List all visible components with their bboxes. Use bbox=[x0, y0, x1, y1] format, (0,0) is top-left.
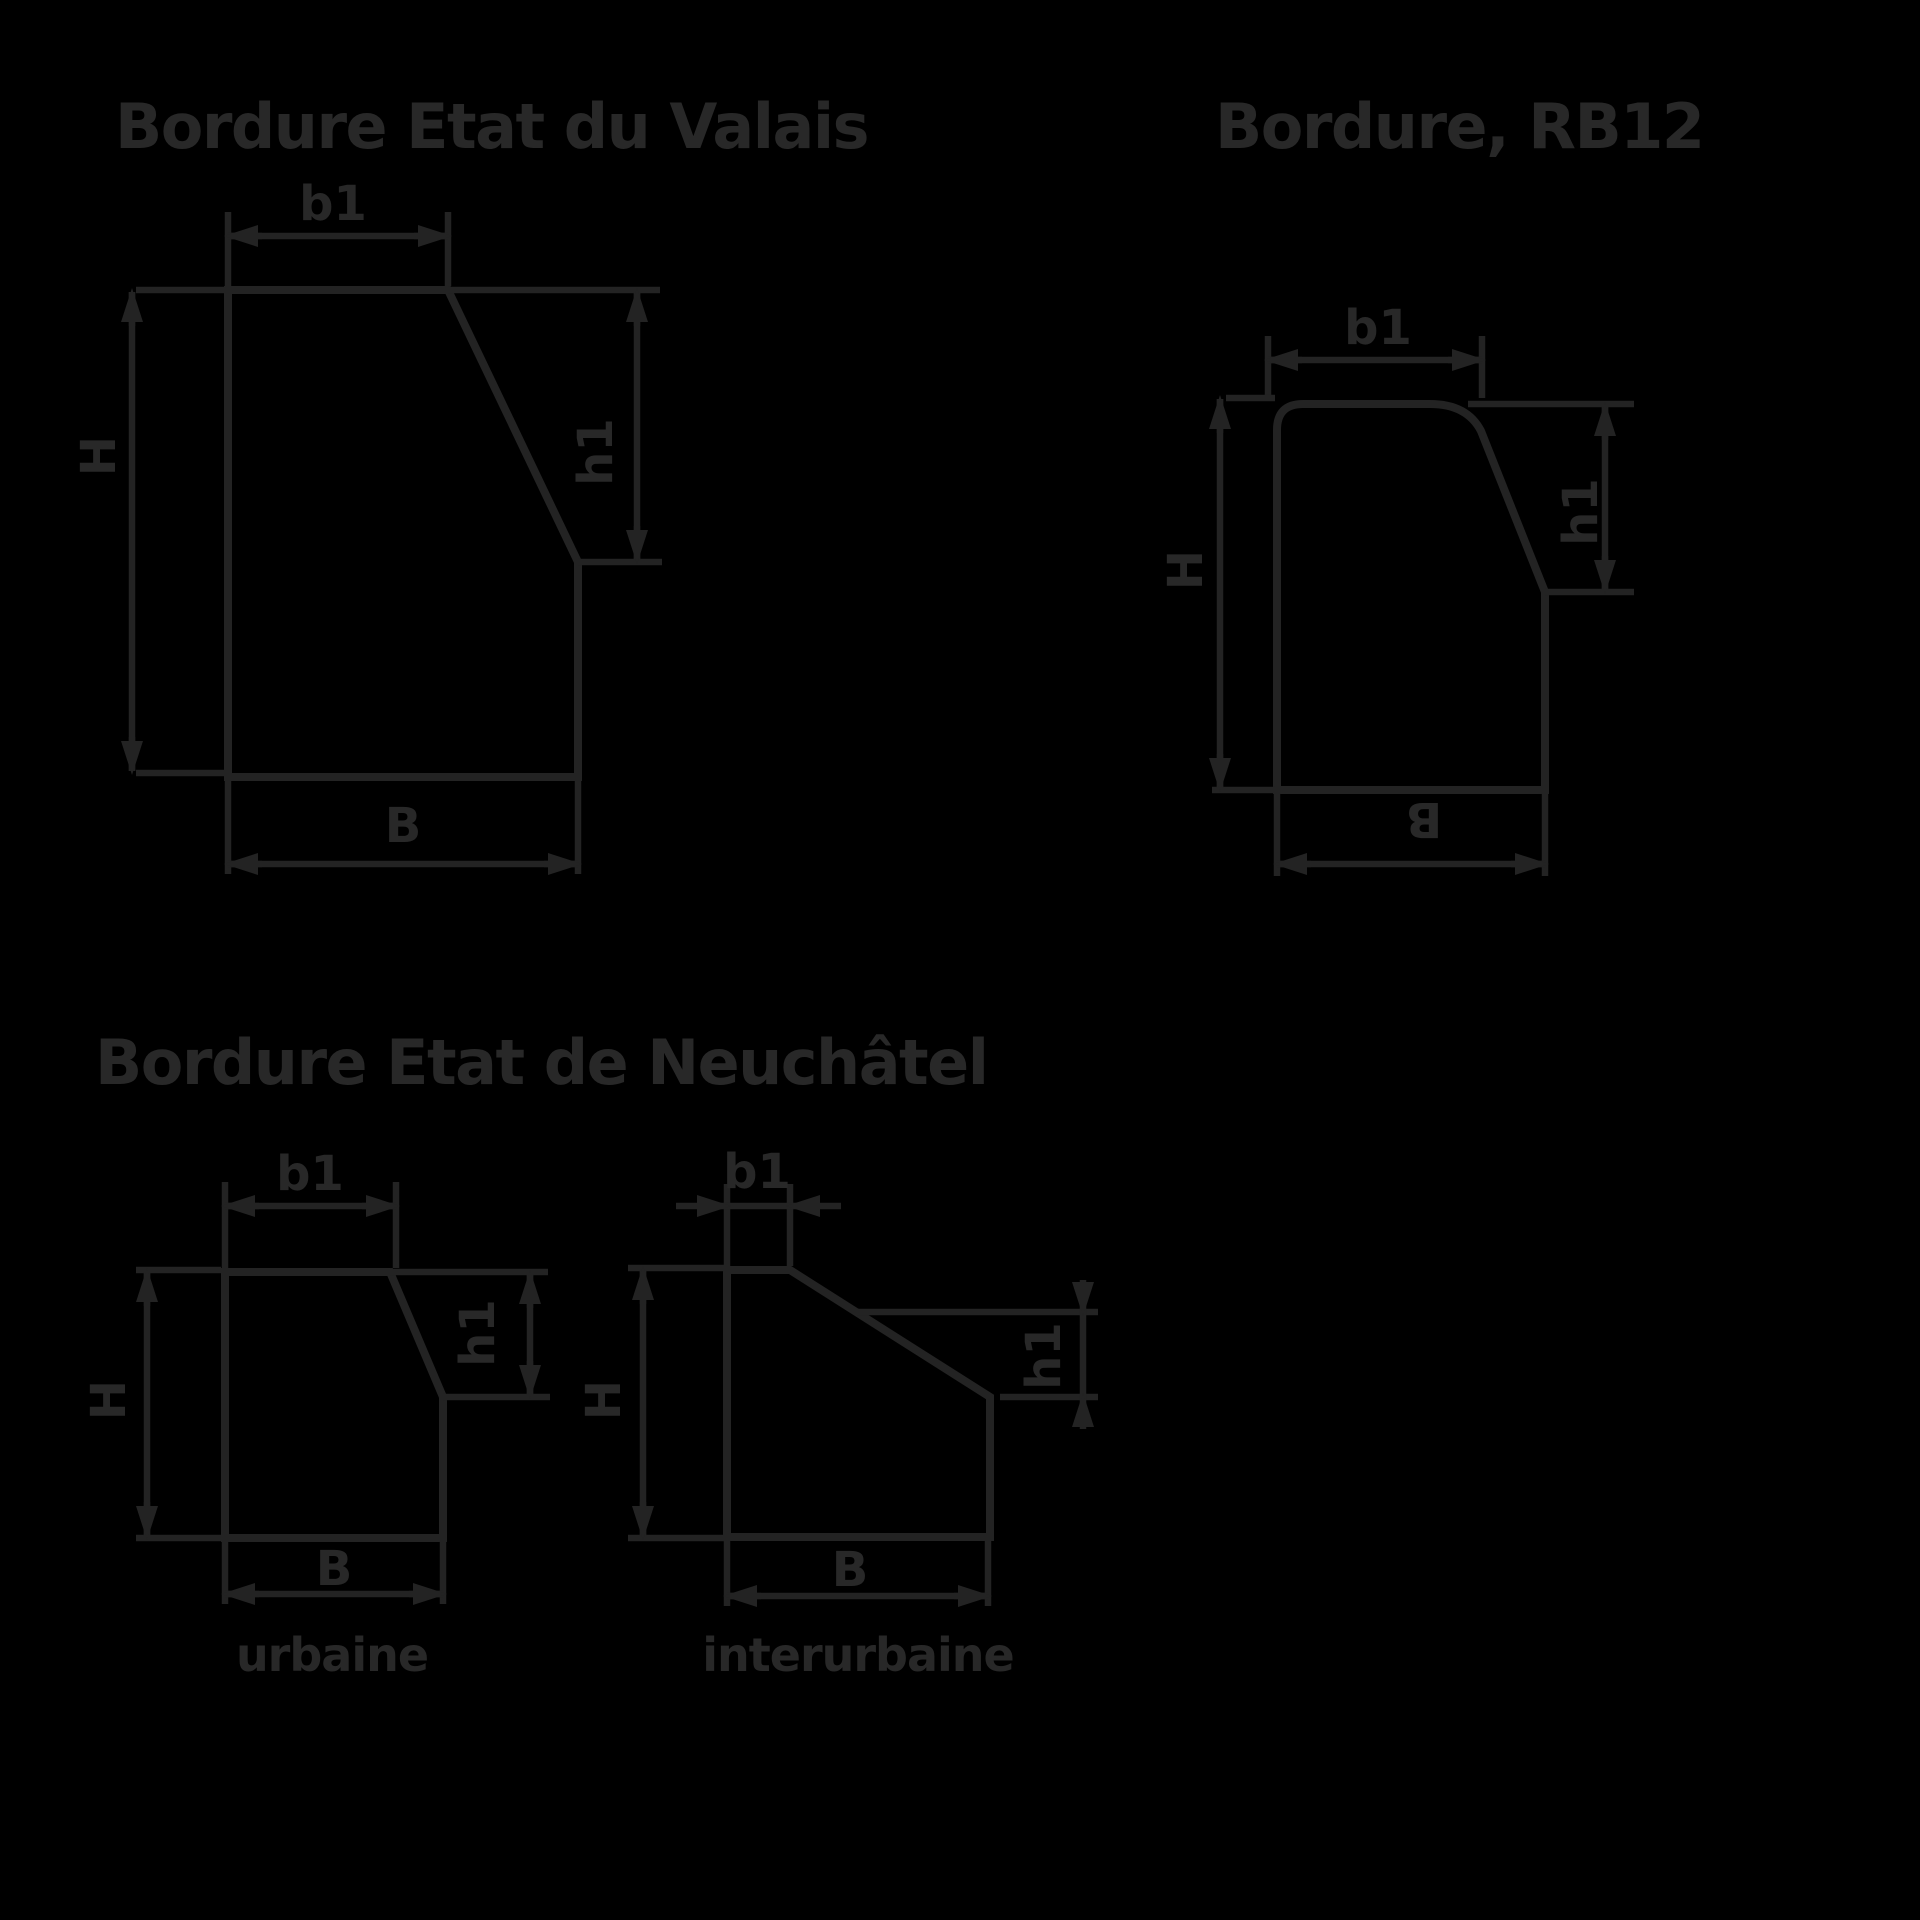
rb12-profile-outline bbox=[1277, 404, 1545, 790]
valais-profile-outline bbox=[228, 290, 578, 777]
rb12-B-label: B bbox=[1406, 791, 1443, 847]
diagram-canvas: Bordure Etat du Valais b1 H h1 bbox=[0, 0, 1920, 1920]
valais-B-label: B bbox=[385, 798, 422, 854]
rb12-title: Bordure, RB12 bbox=[1215, 90, 1704, 163]
neuchatel-interurbaine-figure: b1 H h1 bbox=[576, 1144, 1098, 1682]
neuchatel-diagram: Bordure Etat de Neuchâtel b1 H bbox=[81, 1026, 1098, 1682]
valais-b1-label: b1 bbox=[299, 176, 367, 232]
interurbaine-b1-dimension: b1 bbox=[676, 1144, 841, 1266]
valais-title: Bordure Etat du Valais bbox=[115, 90, 868, 163]
rb12-h1-dimension: h1 bbox=[1468, 404, 1634, 592]
interurbaine-b1-label: b1 bbox=[723, 1144, 791, 1200]
rb12-h1-label: h1 bbox=[1553, 478, 1609, 546]
interurbaine-h1-label: h1 bbox=[1016, 1322, 1072, 1390]
rb12-H-label: H bbox=[1158, 550, 1214, 590]
urbaine-B-label: B bbox=[316, 1541, 353, 1597]
urbaine-B-dimension: B bbox=[225, 1541, 443, 1604]
rb12-H-dimension: H bbox=[1158, 398, 1275, 790]
rb12-b1-label: b1 bbox=[1344, 300, 1412, 356]
interurbaine-H-dimension: H bbox=[576, 1268, 724, 1538]
interurbaine-B-label: B bbox=[832, 1542, 869, 1598]
rb12-b1-dimension: b1 bbox=[1268, 300, 1482, 398]
interurbaine-caption: interurbaine bbox=[702, 1628, 1014, 1682]
urbaine-b1-label: b1 bbox=[276, 1146, 344, 1202]
rb12-diagram: Bordure, RB12 b1 H h1 bbox=[1158, 90, 1704, 876]
valais-h1-label: h1 bbox=[568, 418, 624, 486]
urbaine-profile-outline bbox=[225, 1272, 443, 1538]
valais-H-label: H bbox=[71, 436, 127, 476]
rb12-B-dimension: B bbox=[1277, 791, 1545, 876]
interurbaine-B-dimension: B bbox=[727, 1540, 988, 1606]
interurbaine-h1-dimension: h1 bbox=[857, 1280, 1098, 1429]
urbaine-b1-dimension: b1 bbox=[225, 1146, 396, 1268]
urbaine-caption: urbaine bbox=[236, 1628, 428, 1682]
valais-B-dimension: B bbox=[228, 781, 578, 874]
curb-profile-diagram-sheet: Bordure Etat du Valais b1 H h1 bbox=[0, 0, 1920, 1920]
urbaine-h1-label: h1 bbox=[450, 1299, 506, 1367]
valais-b1-dimension: b1 bbox=[228, 176, 448, 286]
urbaine-H-label: H bbox=[81, 1380, 137, 1420]
urbaine-H-dimension: H bbox=[81, 1270, 221, 1538]
valais-diagram: Bordure Etat du Valais b1 H h1 bbox=[71, 90, 868, 874]
neuchatel-urbaine-figure: b1 H h1 bbox=[81, 1146, 550, 1682]
interurbaine-H-label: H bbox=[576, 1380, 632, 1420]
valais-H-dimension: H bbox=[71, 290, 224, 773]
neuchatel-title: Bordure Etat de Neuchâtel bbox=[95, 1026, 987, 1099]
